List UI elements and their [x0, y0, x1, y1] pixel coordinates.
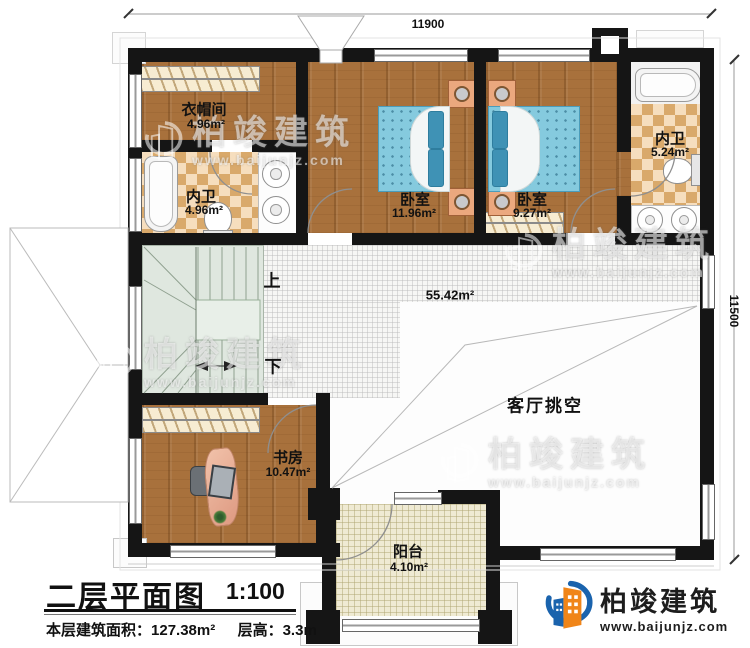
floor-stats: 本层建筑面积：127.38m² 层高：3.3m: [46, 619, 317, 640]
room-area-bedroom-left: 11.96m²: [392, 206, 436, 220]
pillow: [428, 111, 444, 149]
bathtub-right: [635, 68, 701, 102]
room-area-study: 10.47m²: [266, 465, 311, 479]
sink-icon: [262, 196, 290, 224]
brand-logo: 柏竣建筑 www.baijunjz.com: [540, 578, 728, 636]
window: [129, 158, 142, 232]
nightstand: [448, 80, 476, 108]
balcony-post: [478, 610, 512, 644]
balcony-wall: [308, 488, 340, 520]
wall-segment: [142, 393, 268, 405]
pillow: [492, 111, 508, 149]
wall-segment: [474, 62, 486, 233]
wall-segment: [142, 140, 212, 152]
study-wardrobe: [142, 407, 260, 433]
pillow: [428, 149, 444, 187]
stairwell: [142, 245, 264, 397]
brand-logo-icon: [540, 578, 594, 636]
wall-segment: [617, 196, 631, 233]
stairs-down-label: 下: [265, 353, 282, 378]
bath-right-threshold: [617, 152, 631, 196]
hall-floor-upper: [262, 245, 700, 302]
sink-icon: [637, 207, 663, 233]
room-label-living-void: 客厅挑空: [507, 392, 583, 417]
sink-icon: [262, 160, 290, 188]
dimension-top-value: 11900: [400, 17, 456, 31]
wall-segment: [296, 62, 308, 233]
balcony-railing: [394, 492, 442, 505]
room-area-bath-right: 5.24m²: [651, 145, 689, 159]
window: [498, 49, 590, 62]
window: [129, 438, 142, 524]
roof-below: [10, 228, 128, 502]
monitor-icon: [208, 464, 236, 499]
wall-segment: [615, 233, 702, 245]
window: [702, 484, 715, 540]
floor-height-label: 层高：: [238, 622, 283, 639]
nightstand: [448, 188, 476, 216]
bathtub-left: [144, 156, 178, 232]
wall-segment: [617, 62, 631, 152]
wall-segment: [142, 233, 308, 245]
window: [374, 49, 468, 62]
wall-segment: [252, 140, 296, 152]
room-area-bedroom-right: 9.27m²: [513, 206, 551, 220]
sink-icon: [671, 207, 697, 233]
cloakroom-wardrobe: [140, 66, 260, 92]
room-area-cloakroom: 4.96m²: [187, 117, 225, 131]
flue-inner: [601, 36, 619, 54]
window: [540, 548, 676, 561]
nightstand: [488, 188, 516, 216]
brand-logo-text: 柏竣建筑: [600, 580, 728, 619]
room-area-balcony: 4.10m²: [390, 560, 428, 574]
window: [129, 286, 142, 370]
window: [170, 545, 276, 558]
floor-plan: 柏竣建筑 www.baijunjz.com 柏竣建筑 www.baijunjz.…: [0, 0, 750, 648]
window: [702, 255, 715, 309]
hall-floor-lower: [262, 302, 400, 398]
window: [129, 74, 142, 148]
plan-scale: 1:100: [226, 578, 285, 605]
balcony-railing: [342, 619, 480, 632]
toilet-right-bowl: [663, 158, 693, 184]
balcony-wall: [438, 490, 500, 504]
nightstand: [488, 80, 516, 108]
pillow: [492, 149, 508, 187]
brand-logo-url: www.baijunjz.com: [600, 619, 728, 634]
floor-height-value: 3.3m: [283, 622, 317, 639]
room-area-bath-left: 4.96m²: [185, 203, 223, 217]
dimension-right-value: 11500: [727, 283, 741, 339]
sill-top-right: [636, 30, 704, 48]
plant-icon: [213, 510, 227, 524]
title-underline: [44, 609, 296, 615]
room-label-balcony: 阳台: [393, 541, 423, 562]
wall-segment: [352, 233, 568, 245]
stairs-up-label: 上: [264, 267, 281, 292]
room-area-hall: 55.42m²: [426, 288, 474, 303]
floor-area-value: 127.38m²: [151, 622, 215, 639]
floor-area-label: 本层建筑面积：: [46, 622, 151, 639]
